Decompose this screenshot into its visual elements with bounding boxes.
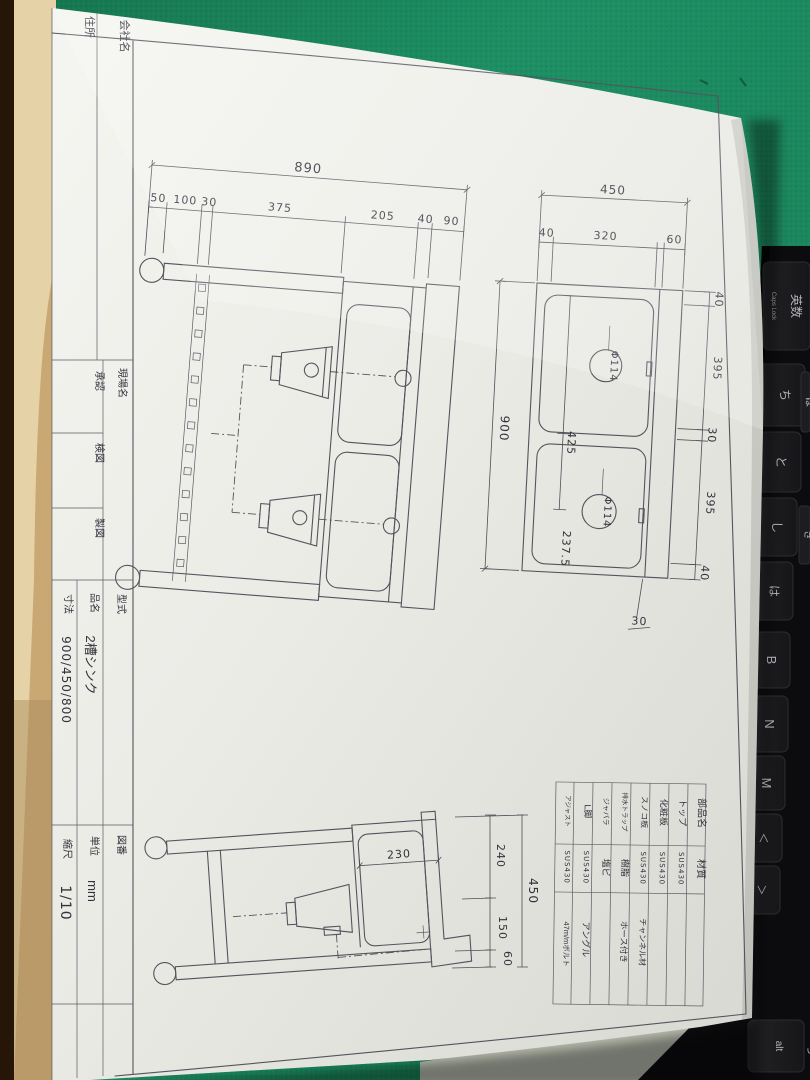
parts-row1-part: 化粧板 [658,799,669,826]
plan-dim-r4: 395 [703,491,717,516]
parts-row5-note: アングル [581,921,592,957]
title-drawing-no-label: 図番 [115,835,127,855]
parts-row2-material: SUS430 [639,851,647,884]
title-draft-label: 製図 [93,518,106,538]
plan-drain2-label: Φ114 [600,496,613,528]
title-scale-label: 縮尺 [61,839,74,859]
key-ki-label: き [802,530,810,540]
parts-row2-part: スノコ板 [639,796,649,828]
parts-row3-material: 樹脂 [620,859,631,877]
parts-row3-note: ホース付き [618,921,629,963]
parts-row4-material: 塩ビ [601,859,612,877]
side-dim-r2: 150 [496,916,509,940]
parts-row4-part: ジャバラ [601,798,609,826]
parts-row6-note: 47m/mボルト [561,921,571,967]
plan-dim-pitch-text: 425 [564,431,578,456]
side-dim-r3: 60 [501,951,514,967]
title-approve-label: 承認 [93,371,106,391]
title-product-value: 2槽シンク [83,635,98,694]
plan-dim-height-text: 900 [497,415,512,442]
parts-row6-part: アジャスト [563,795,571,827]
table-edge [0,0,56,1080]
parts-header-part: 部品名 [695,798,708,828]
title-product-label: 品名 [88,593,101,613]
key-eisu-label: 英数 [789,294,804,318]
parts-row5-material: SUS430 [582,851,590,884]
side-dim-depth-text: 230 [387,847,412,862]
photo-of-technical-drawing: Caps Lock 英数 ち と し は B N M ＜ ＞ alt ろ [0,0,810,1080]
title-model-label: 型式 [115,594,128,614]
parts-row0-part: トップ [677,799,687,826]
title-check-label: 検図 [93,443,106,463]
parts-row5-part: L脚 [583,804,593,818]
parts-row0-material: SUS430 [677,852,685,885]
side-dim-overall: 450 [526,878,540,904]
plan-dim-r3: 30 [705,427,719,444]
key-ro-label: ろ [805,1045,810,1055]
parts-row6-material: SUS430 [563,850,571,883]
parts-row2-note: チャンネル材 [637,918,648,966]
key-chi-label: ち [778,389,792,401]
key-ho-label: ほ [803,397,810,407]
key-m-label: M [759,778,774,789]
title-unit-label: 単位 [88,836,101,856]
key-to-label: と [774,456,788,468]
title-site-label: 現場名 [116,368,129,398]
title-scale-value: 1/10 [57,885,73,920]
plan-dim-half-text: 237.5 [558,530,573,567]
parts-header-material: 材質 [695,859,708,879]
title-unit-value: mm [85,880,100,902]
title-size-label: 寸法 [62,594,75,614]
key-alt-label: alt [773,1041,784,1052]
plan-dim-r5: 40 [698,565,712,582]
key-shi-label: し [770,521,784,533]
plan-dim-gap-text: 30 [631,614,648,628]
parts-row1-material: SUS430 [658,852,666,885]
side-dim-r1: 240 [494,844,507,868]
title-size-value: 900/450/800 [59,636,73,724]
